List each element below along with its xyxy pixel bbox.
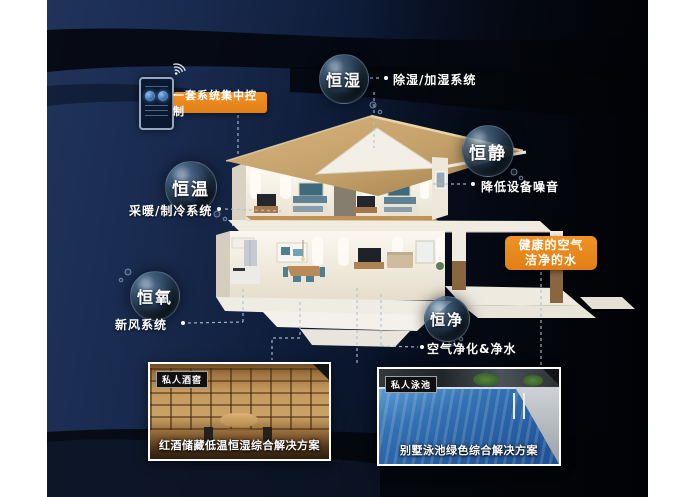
phone-dial-icon — [145, 91, 155, 101]
phone-dial-icon — [158, 91, 168, 101]
wine-card-caption: 红酒储藏低温恒湿综合解决方案 — [150, 437, 329, 453]
smart-home-phone — [139, 77, 174, 130]
bubble-purity: 恒净 — [424, 296, 470, 342]
bubble-humidity-text: 恒湿 — [326, 67, 362, 91]
label-air-water-purify: 空气净化&净水 — [427, 340, 516, 357]
bubble-temperature-text: 恒温 — [172, 175, 210, 200]
wine-tasting-table — [220, 413, 258, 427]
pool-ladder — [513, 393, 525, 419]
corner-ribbon — [313, 364, 329, 380]
label-humidity-system: 除湿/加湿系统 — [393, 71, 476, 88]
phone-screen-row — [145, 105, 168, 106]
bush — [523, 375, 543, 386]
pool-card-tag: 私人泳池 — [385, 376, 437, 393]
wine-card-tag: 私人酒窖 — [156, 371, 208, 388]
highlight-card-line2: 洁净的水 — [525, 253, 577, 268]
phone-screen-row — [145, 115, 168, 116]
phone-screen-titlebar — [145, 81, 168, 87]
pool-photo: 私人泳池 别墅泳池绿色综合解决方案 — [379, 369, 559, 464]
bush — [473, 373, 499, 386]
central-control-banner: 一套系统集中控制 — [173, 92, 267, 113]
bubble-quiet: 恒静 — [462, 125, 514, 177]
label-noise-reduction: 降低设备噪音 — [481, 178, 559, 195]
central-control-banner-text: 一套系统集中控制 — [173, 87, 267, 119]
bubble-quiet-text: 恒静 — [469, 139, 507, 164]
wine-cellar-photo: 私人酒窖 红酒储藏低温恒湿综合解决方案 — [150, 364, 329, 459]
label-heating-cooling: 采暖/制冷系统 — [129, 202, 212, 219]
bubble-humidity: 恒湿 — [319, 54, 369, 104]
bubble-oxygen-text: 恒氧 — [137, 284, 173, 308]
label-fresh-air-system: 新风系统 — [115, 316, 167, 333]
stage: 一套系统集中控制 健康的空气 洁净的水 恒湿 恒静 恒温 恒氧 恒净 除湿/加湿… — [47, 0, 648, 497]
bubble-purity-text: 恒净 — [430, 309, 464, 330]
solution-card-wine-cellar: 私人酒窖 红酒储藏低温恒湿综合解决方案 — [148, 362, 331, 461]
highlight-card: 健康的空气 洁净的水 — [505, 236, 597, 270]
highlight-card-line1: 健康的空气 — [518, 238, 583, 253]
bubble-oxygen: 恒氧 — [130, 271, 180, 321]
phone-screen-row — [145, 110, 168, 111]
solution-card-pool: 私人泳池 别墅泳池绿色综合解决方案 — [377, 367, 561, 466]
corner-ribbon — [543, 369, 559, 385]
infographic-canvas: 一套系统集中控制 健康的空气 洁净的水 恒湿 恒静 恒温 恒氧 恒净 除湿/加湿… — [0, 0, 700, 497]
pool-card-caption: 别墅泳池绿色综合解决方案 — [379, 442, 559, 458]
